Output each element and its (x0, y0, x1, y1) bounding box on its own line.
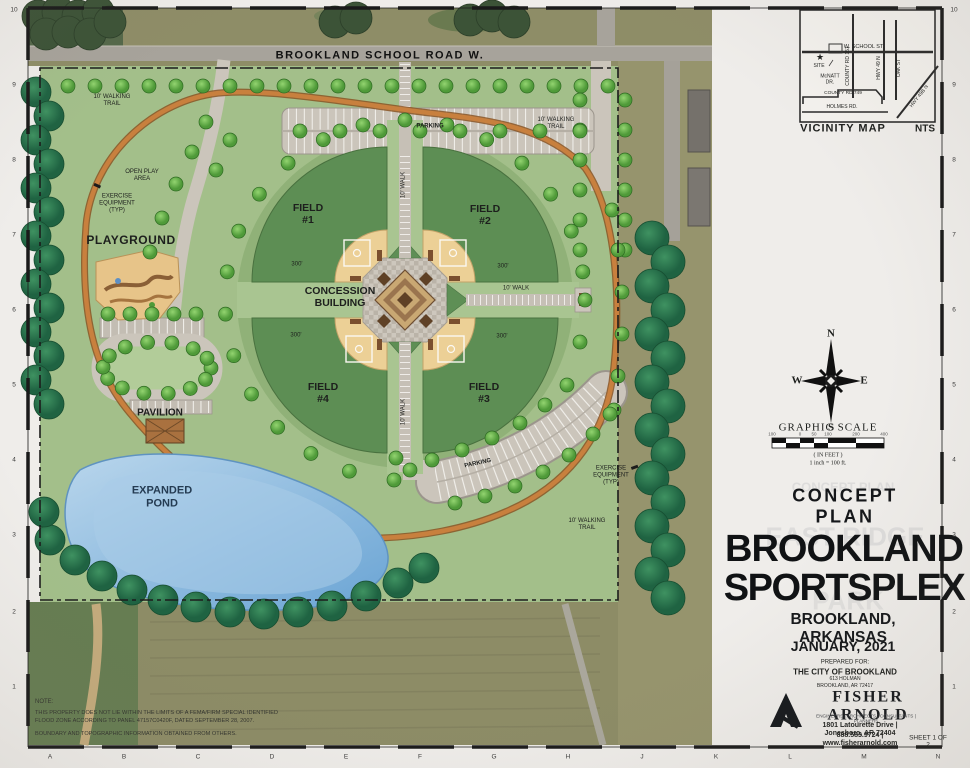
grid-number-8: 8 (12, 157, 16, 164)
graphic-scale-bar (772, 438, 884, 448)
scale-tick-5: 400 (880, 431, 888, 436)
exercise-equipment-label-right: EXERCISE EQUIPMENT (TYP) (593, 466, 629, 487)
grid-letter-N: N (936, 754, 941, 761)
grid-letter-D: D (270, 754, 275, 761)
vicinity-site-label: SITE (813, 64, 824, 70)
fisher-arnold-logo (770, 693, 802, 727)
walk-label-bottom: 10' WALK (401, 399, 408, 425)
grid-number-2: 2 (952, 609, 956, 616)
grid-number-7: 7 (12, 232, 16, 239)
grid-number-6: 6 (12, 307, 16, 314)
project-name-line1: BROOKLAND (725, 528, 963, 572)
scale-tick-4: 200 (852, 431, 860, 436)
trail-label-bottom-right: 10' WALKING TRAIL (569, 518, 606, 532)
grid-letter-L: L (788, 754, 792, 761)
grid-number-10: 10 (10, 7, 17, 14)
grid-number-5: 5 (12, 382, 16, 389)
vicinity-county749-label: COUNTY RD 749 (824, 91, 862, 97)
compass-e: E (860, 375, 867, 388)
firm-phone: 888.583.9724 | www.fisherarnold.com (805, 732, 915, 748)
scale-in-feet: ( IN FEET ) (813, 453, 842, 460)
prepared-for-label: PREPARED FOR: (821, 660, 870, 667)
grid-number-9: 9 (952, 82, 956, 89)
grid-number-5: 5 (952, 382, 956, 389)
compass-w: W (792, 375, 803, 388)
scale-ratio: 1 inch = 100 ft. (810, 461, 847, 468)
grid-letter-J: J (640, 754, 643, 761)
parking-label-top: PARKING (416, 124, 443, 131)
grid-number-2: 2 (12, 609, 16, 616)
grid-number-4: 4 (12, 457, 16, 464)
walk-label-right: 10' WALK (503, 286, 529, 293)
scale-tick-2: 50 (811, 431, 816, 436)
grid-letter-H: H (566, 754, 571, 761)
grid-number-3: 3 (12, 532, 16, 539)
notes-body-2: BOUNDARY AND TOPOGRAPHIC INFORMATION OBT… (35, 731, 237, 737)
vicinity-nts-label: NTS (915, 123, 935, 135)
pavilion-structure (146, 419, 184, 443)
dimension-field4: 300' (290, 333, 301, 340)
grid-number-6: 6 (952, 307, 956, 314)
site-star-icon: ★ (816, 52, 824, 62)
vicinity-oak-st-label: OAK ST (897, 59, 903, 77)
walk-label-top: 10' WALK (401, 172, 408, 198)
concept-plan-heading: CONCEPT PLAN (783, 485, 908, 526)
vicinity-holmes-label: HOLMES RD. (826, 105, 857, 111)
grid-number-9: 9 (12, 82, 16, 89)
grid-number-4: 4 (952, 457, 956, 464)
plan-sheet-photo: BROOKLAND SCHOOL ROAD W. 10' WALKING TRA… (0, 0, 970, 768)
concession-building-label: CONCESSION BUILDING (305, 285, 376, 309)
dimension-field1: 300' (291, 262, 302, 269)
grid-letter-K: K (714, 754, 718, 761)
vicinity-hwy49-label: HWY 49 N (877, 56, 883, 80)
compass-n: N (827, 328, 835, 341)
playground-label: PLAYGROUND (86, 234, 175, 248)
field-1-label: FIELD #1 (293, 202, 323, 226)
road-label: BROOKLAND SCHOOL ROAD W. (276, 50, 485, 63)
grid-number-7: 7 (952, 232, 956, 239)
grid-letter-E: E (344, 754, 348, 761)
grid-letter-M: M (861, 754, 866, 761)
vicinity-county151-label: COUNTY RD 151 (846, 46, 852, 85)
grid-letter-F: F (418, 754, 422, 761)
dimension-field3: 300' (496, 334, 507, 341)
pond-label: EXPANDED POND (132, 484, 192, 509)
trail-label-top-right: 10' WALKING TRAIL (538, 117, 575, 131)
dimension-field2: 300' (497, 264, 508, 271)
open-play-area-label: OPEN PLAY AREA (125, 169, 159, 183)
scale-tick-3: 100 (824, 431, 832, 436)
grid-number-8: 8 (952, 157, 956, 164)
pavilion-label: PAVILION (137, 407, 183, 419)
notes-heading: NOTE: (35, 699, 53, 705)
grid-number-1: 1 (12, 684, 16, 691)
scale-tick-0: 100 (768, 431, 776, 436)
grid-number-1: 1 (952, 684, 956, 691)
grid-letter-B: B (122, 754, 126, 761)
grid-letter-G: G (491, 754, 496, 761)
project-date: JANUARY, 2021 (791, 638, 896, 654)
field-4-label: FIELD #4 (308, 381, 338, 405)
scale-tick-1: 0 (799, 431, 802, 436)
vicinity-map-title: VICINITY MAP (800, 123, 886, 136)
grid-number-3: 3 (952, 532, 956, 539)
grid-letter-C: C (196, 754, 201, 761)
exercise-equipment-label-left: EXERCISE EQUIPMENT (TYP) (99, 194, 135, 215)
grid-letter-A: A (48, 754, 52, 761)
north-arrow (801, 339, 861, 423)
trail-label-top-left: 10' WALKING TRAIL (94, 94, 131, 108)
field-2-label: FIELD #2 (470, 203, 500, 227)
client-address1: 613 HOLMAN (829, 677, 860, 683)
notes-body-1: THIS PROPERTY DOES NOT LIE WITHIN THE LI… (35, 709, 278, 726)
vicinity-mcnatt-label: McNATT DR. (820, 74, 839, 86)
grid-number-10: 10 (950, 7, 957, 14)
sheet-number: SHEET 1 OF 2 (907, 735, 949, 750)
field-3-label: FIELD #3 (469, 381, 499, 405)
project-name-line2: SPORTSPLEX (724, 567, 965, 611)
